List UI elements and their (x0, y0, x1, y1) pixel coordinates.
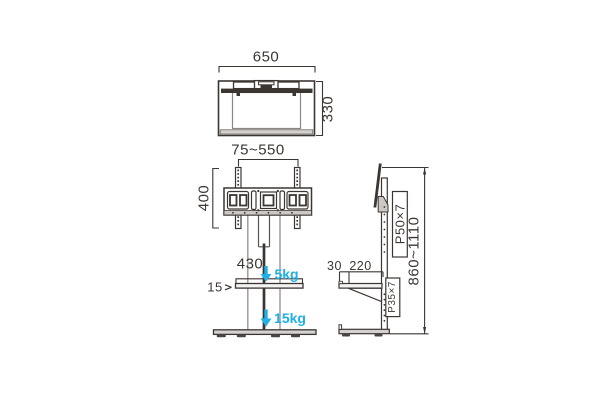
lower-pitch-label: P35×7 (388, 281, 398, 313)
top-view (219, 81, 315, 136)
dim-height-arrow-up (423, 168, 426, 175)
dim-height-arrow-down (423, 327, 426, 334)
dim-15-arrow (225, 285, 232, 290)
dim-label-top-depth: 330 (320, 95, 335, 122)
top-foot-right (293, 93, 297, 96)
dim-label-bracket-height: 400 (196, 185, 211, 212)
side-base (339, 329, 389, 333)
dim-label-side-gap: 30 (327, 260, 342, 273)
dim-30-220-line (340, 272, 384, 283)
base-load-label: 15kg (274, 311, 306, 325)
dim-400-line (213, 169, 219, 229)
front-shelf (236, 284, 304, 289)
dim-650-line (219, 67, 315, 73)
top-bracket-right (278, 82, 300, 89)
dim-label-top-width: 650 (253, 49, 280, 64)
front-column-inner (259, 215, 270, 247)
top-view-shelf (233, 93, 301, 129)
load-arrows (261, 266, 272, 327)
dim-label-height-range: 860~1110 (407, 216, 422, 285)
side-shelf (339, 284, 382, 289)
top-mount-bar (261, 85, 273, 88)
front-base (214, 330, 317, 335)
top-foot-left (237, 93, 241, 96)
tv-top-bar (221, 89, 313, 93)
dim-label-shelf-width: 430 (237, 256, 264, 271)
side-base-lip (339, 325, 342, 330)
technical-drawing-canvas: 650 330 75~550 400 430 15 5kg 15kg 30 22… (0, 0, 600, 400)
shelf-load-label: 5kg (274, 267, 298, 281)
dim-vesa-line (239, 160, 299, 167)
top-view-base-band (220, 130, 313, 134)
dim-label-vesa-range: 75~550 (231, 142, 284, 157)
dim-label-shelf-thickness: 15 (207, 281, 222, 294)
top-bracket-left (234, 82, 256, 89)
side-shelf-support (349, 288, 382, 301)
dim-label-shelf-depth: 220 (349, 260, 371, 273)
base-load-down-arrow-icon (261, 310, 272, 327)
drawing-svg (0, 0, 600, 400)
upper-pitch-label: P50×7 (393, 204, 406, 244)
side-shelf-lip (339, 281, 342, 283)
